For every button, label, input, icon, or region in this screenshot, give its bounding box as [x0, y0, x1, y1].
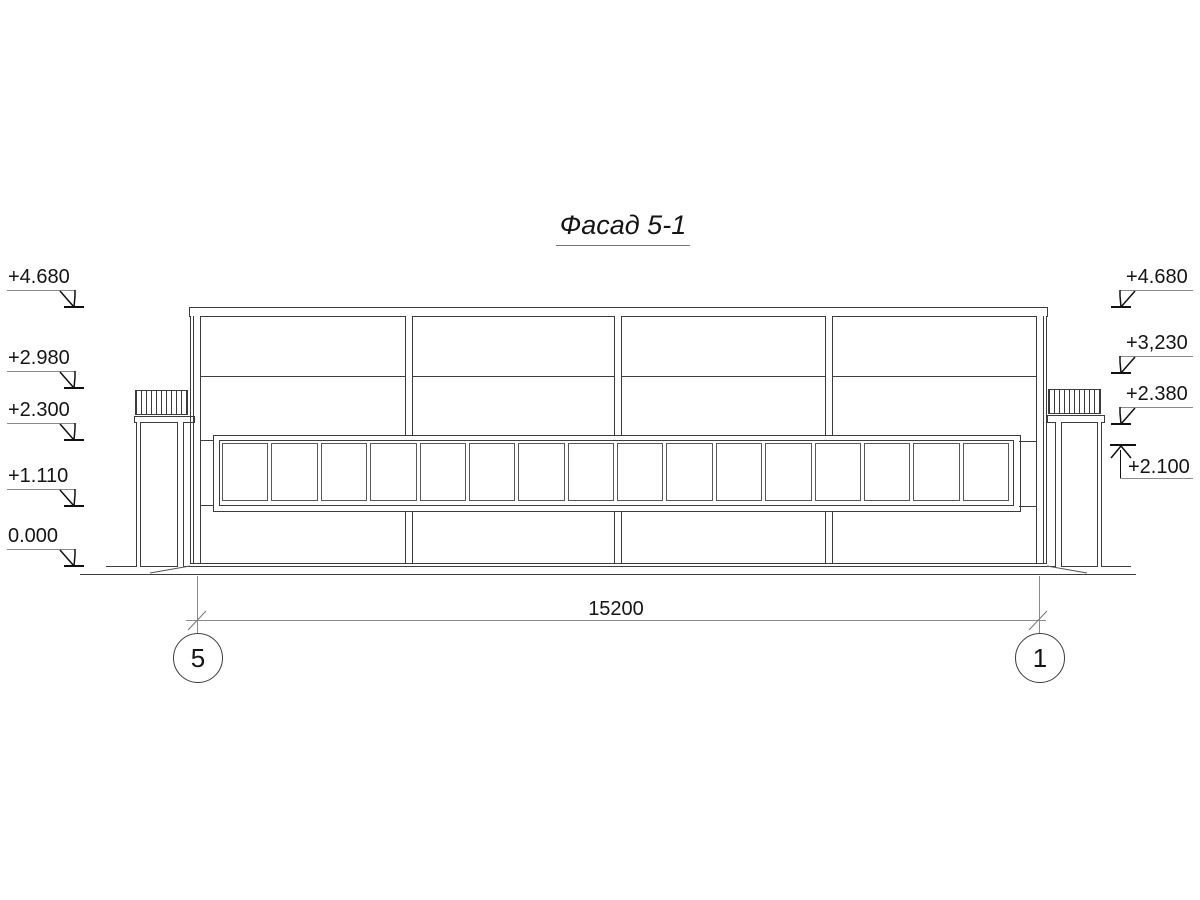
elevation-mark-label: +4.680	[8, 266, 70, 289]
window-pane	[765, 443, 811, 501]
elevation-arrow-down-icon	[50, 290, 86, 310]
elevation-mark-label: +2.100	[1128, 456, 1190, 479]
right-wall-inner-line	[1043, 316, 1044, 563]
elevation-arrow-down-icon	[1109, 356, 1145, 376]
window-pane	[913, 443, 959, 501]
facade-mullion-upper	[825, 316, 833, 435]
facade-mullion-lower	[614, 511, 622, 563]
axis-bubble-1: 1	[1015, 633, 1065, 683]
elevation-arrow-down-icon	[50, 423, 86, 443]
window-pane-row	[222, 443, 1009, 501]
elevation-mark-label: +2.980	[8, 347, 70, 370]
elevation-arrow-down-icon	[1109, 290, 1145, 310]
elevation-mark-label: +4.680	[1126, 266, 1188, 289]
left-annex-hatched-canopy	[135, 390, 188, 415]
elevation-leader-line	[1120, 450, 1121, 478]
elevation-mark-label: +2.380	[1126, 383, 1188, 406]
facade-mullion-lower	[825, 511, 833, 563]
axis-extension-line	[1039, 576, 1040, 633]
window-pane	[716, 443, 762, 501]
right-annex-post	[1097, 422, 1102, 567]
window-sill-connector	[200, 505, 213, 506]
window-pane	[864, 443, 910, 501]
elevation-mark-label: 0.000	[8, 525, 58, 548]
left-annex-post	[177, 422, 184, 567]
elevation-arrow-down-icon	[50, 371, 86, 391]
right-wall	[1036, 316, 1047, 563]
elevation-mark-label: +1.110	[8, 465, 68, 488]
window-pane	[420, 443, 466, 501]
window-sill-connector	[1019, 506, 1036, 507]
right-annex-post	[1055, 422, 1062, 567]
window-head-connector	[200, 440, 213, 441]
axis-extension-line	[197, 576, 198, 633]
ground-line	[80, 574, 1136, 575]
window-pane	[271, 443, 317, 501]
drawing-title: Фасад 5-1	[556, 210, 690, 246]
window-pane	[963, 443, 1009, 501]
facade-mullion-upper	[614, 316, 622, 435]
right-annex-hatched-canopy	[1048, 389, 1101, 414]
window-pane	[666, 443, 712, 501]
facade-mullion-upper	[405, 316, 413, 435]
window-pane	[370, 443, 416, 501]
window-head-connector	[1019, 441, 1036, 442]
elevation-arrow-down-icon	[50, 489, 86, 509]
window-pane	[222, 443, 268, 501]
elevation-mark-label: +2.300	[8, 399, 70, 422]
elevation-arrow-down-icon	[1109, 407, 1145, 427]
elevation-mark-label: +3,230	[1126, 332, 1188, 355]
window-pane	[568, 443, 614, 501]
left-annex-post	[136, 422, 141, 567]
slab-top-line	[106, 566, 1131, 567]
window-pane	[617, 443, 663, 501]
left-wall-inner-line	[193, 316, 194, 563]
facade-drawing-canvas: Фасад 5-1 15200 5	[0, 0, 1200, 900]
dimension-value: 15200	[566, 598, 666, 621]
window-pane	[815, 443, 861, 501]
left-annex-band	[134, 416, 195, 423]
axis-bubble-5: 5	[173, 633, 223, 683]
window-pane	[321, 443, 367, 501]
elevation-arrow-down-icon	[50, 549, 86, 569]
window-pane	[469, 443, 515, 501]
facade-mullion-lower	[405, 511, 413, 563]
window-pane	[518, 443, 564, 501]
facade-base-line	[190, 563, 1047, 564]
